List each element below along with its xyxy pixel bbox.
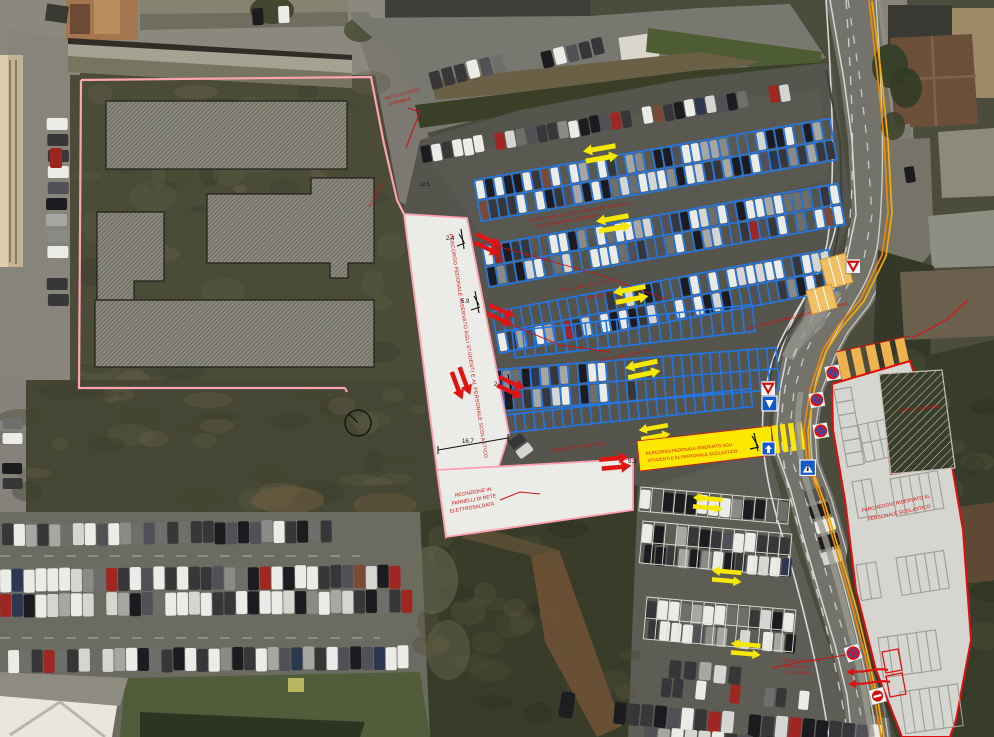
svg-text:USCITA CARRABILE: USCITA CARRABILE [782, 658, 820, 663]
svg-text:5.9: 5.9 [461, 299, 470, 305]
svg-text:12.5: 12.5 [420, 182, 430, 188]
svg-text:2.4: 2.4 [446, 236, 455, 242]
svg-text:RISERVATA AL: RISERVATA AL [784, 664, 812, 669]
svg-text:5.3: 5.3 [628, 459, 637, 465]
svg-text:PERSONALE: PERSONALE [786, 670, 811, 675]
